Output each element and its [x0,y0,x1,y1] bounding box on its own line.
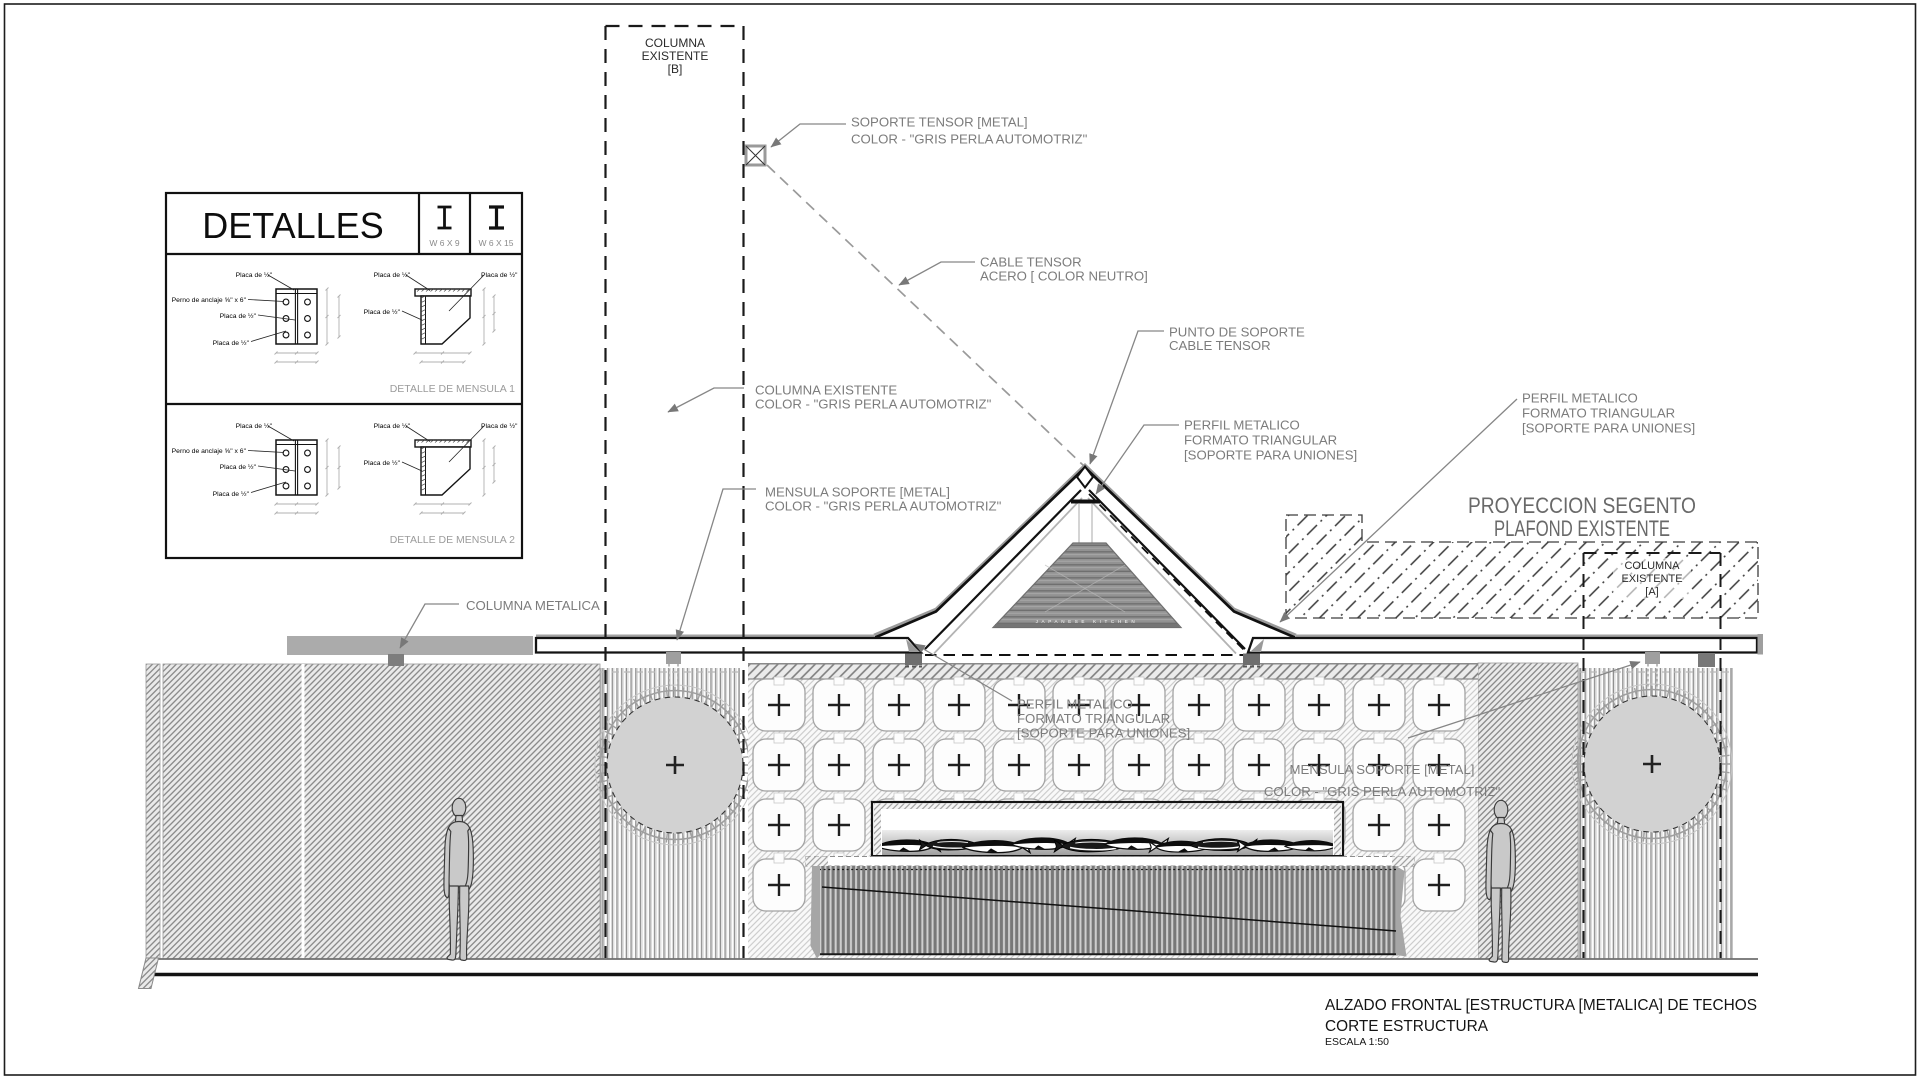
svg-text:EXISTENTE: EXISTENTE [642,49,709,63]
svg-text:Placa de ½": Placa de ½" [220,312,257,320]
svg-text:SOPORTE TENSOR [METAL]: SOPORTE TENSOR [METAL] [851,115,1028,130]
svg-text:Placa de ½": Placa de ½" [213,339,250,347]
svg-text:PLAFOND EXISTENTE: PLAFOND EXISTENTE [1494,516,1670,541]
svg-text:Placa de ½": Placa de ½" [374,271,411,279]
svg-text:Placa de ½": Placa de ½" [236,422,273,430]
svg-text:EXISTENTE: EXISTENTE [1621,573,1682,585]
svg-text:Placa de ½": Placa de ½" [374,422,411,430]
svg-text:JAPANESE KITCHEN: JAPANESE KITCHEN [1036,619,1139,624]
svg-text:CABLE TENSOR: CABLE TENSOR [980,255,1082,270]
svg-text:FORMATO TRIANGULAR: FORMATO TRIANGULAR [1184,433,1337,448]
svg-text:PERFIL METALICO: PERFIL METALICO [1017,697,1133,712]
svg-text:Perno de anclaje ⅝" x 6": Perno de anclaje ⅝" x 6" [172,448,247,455]
svg-text:COLOR - "GRIS PERLA AUTOMOTRIZ: COLOR - "GRIS PERLA AUTOMOTRIZ" [851,132,1088,147]
svg-text:MENSULA SOPORTE [METAL]: MENSULA SOPORTE [METAL] [765,485,950,500]
svg-text:PERFIL METALICO: PERFIL METALICO [1522,391,1638,406]
svg-text:COLUMNA METALICA: COLUMNA METALICA [466,598,600,613]
svg-text:FORMATO TRIANGULAR: FORMATO TRIANGULAR [1017,711,1170,726]
svg-text:PROYECCION SEGENTO: PROYECCION SEGENTO [1468,493,1696,518]
svg-text:COLOR - "GRIS PERLA AUTOMOTRIZ: COLOR - "GRIS PERLA AUTOMOTRIZ" [1264,784,1501,799]
svg-text:Placa de ½": Placa de ½" [220,463,257,471]
svg-text:DETALLES: DETALLES [202,205,383,246]
svg-text:W 6 X 15: W 6 X 15 [479,238,514,248]
svg-text:ESCALA 1:50: ESCALA 1:50 [1325,1036,1389,1048]
svg-text:COLUMNA: COLUMNA [645,36,705,50]
svg-text:ALZADO FRONTAL [ESTRUCTURA [M: ALZADO FRONTAL [ESTRUCTURA [METALICA] DE… [1325,997,1757,1014]
svg-text:W 6 X 9: W 6 X 9 [429,238,460,248]
svg-text:Placa de ½": Placa de ½" [364,308,401,316]
svg-text:Placa de ½": Placa de ½" [213,490,250,498]
svg-text:Placa de ½": Placa de ½" [364,459,401,467]
svg-text:COLUMNA: COLUMNA [1624,560,1680,572]
svg-text:[B]: [B] [668,62,683,76]
svg-text:CORTE ESTRUCTURA: CORTE ESTRUCTURA [1325,1018,1488,1035]
svg-text:MENSULA SOPORTE [METAL]: MENSULA SOPORTE [METAL] [1290,762,1475,777]
svg-text:ACERO [ COLOR NEUTRO]: ACERO [ COLOR NEUTRO] [980,269,1148,284]
svg-text:Placa de ½": Placa de ½" [481,271,518,279]
svg-text:[SOPORTE PARA UNIONES]: [SOPORTE PARA UNIONES] [1522,421,1695,436]
svg-text:PERFIL METALICO: PERFIL METALICO [1184,418,1300,433]
svg-text:COLUMNA EXISTENTE: COLUMNA EXISTENTE [755,383,897,398]
svg-text:Placa de ½": Placa de ½" [481,422,518,430]
svg-text:DETALLE DE MENSULA 1: DETALLE DE MENSULA 1 [390,383,515,395]
svg-text:COLOR - "GRIS PERLA AUTOMOTRIZ: COLOR - "GRIS PERLA AUTOMOTRIZ" [755,397,992,412]
svg-text:FORMATO TRIANGULAR: FORMATO TRIANGULAR [1522,406,1675,421]
svg-text:CABLE TENSOR: CABLE TENSOR [1169,338,1271,353]
svg-text:[SOPORTE PARA UNIONES]: [SOPORTE PARA UNIONES] [1017,726,1190,741]
svg-text:[SOPORTE PARA UNIONES]: [SOPORTE PARA UNIONES] [1184,448,1357,463]
svg-text:Placa de ½": Placa de ½" [236,271,273,279]
svg-text:[A]: [A] [1645,586,1658,598]
svg-text:COLOR - "GRIS PERLA AUTOMOTRIZ: COLOR - "GRIS PERLA AUTOMOTRIZ" [765,499,1002,514]
svg-text:Perno de anclaje ⅝" x 6": Perno de anclaje ⅝" x 6" [172,297,247,304]
svg-text:DETALLE DE MENSULA 2: DETALLE DE MENSULA 2 [390,534,515,546]
